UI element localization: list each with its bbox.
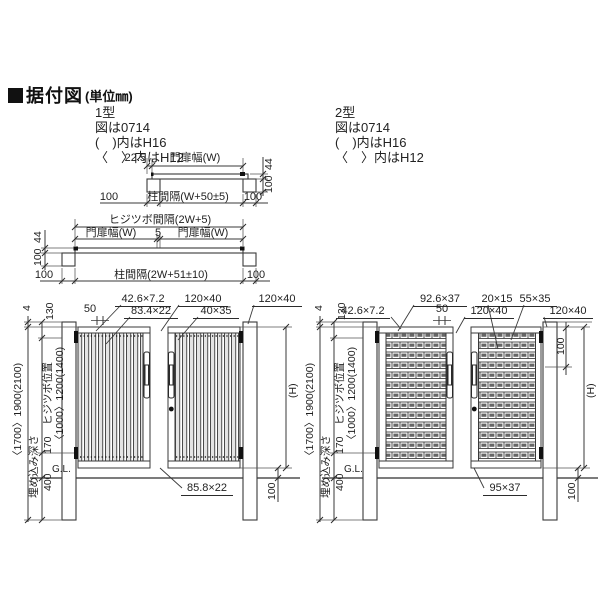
elev2-dim-4: 4 <box>314 302 326 314</box>
page-title-text: 据付図 <box>26 82 83 108</box>
elev2-top-100: 100 <box>556 334 568 358</box>
elev2-clearance-100: 100 <box>567 479 579 503</box>
plan1-dim-100-right: 100 <box>238 191 268 203</box>
plan2-dim-100-right: 100 <box>241 269 271 281</box>
plan2-dim-100v: 100 <box>33 247 45 268</box>
elev1-callout-40x35: 40×35 <box>193 305 239 319</box>
elev2-callout-95x37: 95×37 <box>483 482 527 496</box>
el1-dim-4: 4 <box>22 302 34 314</box>
elev1-dim-170: 170 <box>43 434 55 456</box>
elev1-height-h: (H) <box>288 378 301 404</box>
elev1-hinge-position-values: 〈1000〉1200(1400) <box>55 346 67 446</box>
elev1-callout-120x40-b: 120×40 <box>252 293 302 307</box>
elev1-clearance-100: 100 <box>267 479 279 503</box>
elev2-callout-120x40-a: 120×40 <box>464 305 514 319</box>
section-marker-icon <box>8 88 23 103</box>
elev2-dim-50: 50 <box>432 303 452 315</box>
elev2-ground-line-label: G.L. <box>344 464 363 475</box>
elev1-dim-130: 130 <box>45 301 57 321</box>
plan2-span-label: 柱間隔(2W+51±10) <box>95 269 227 281</box>
plan2-dim-44: 44 <box>33 229 45 246</box>
type2-note-h12: 〈 〉内はH12 <box>335 150 424 165</box>
plan2-dim-100-left: 100 <box>31 269 57 281</box>
plan2-hinge-span-label: ヒジツボ間隔(2W+5) <box>95 214 225 226</box>
plan2-leaf-width-left: 門扉幅(W) <box>80 227 142 239</box>
plan-single-posts <box>147 174 256 192</box>
elev1-dim-50: 50 <box>80 303 100 315</box>
type2-notes: 2型 図は0714 ( )内はH16 〈 〉内はH12 <box>335 105 424 165</box>
plan1-leaf-width-label: 門扉幅(W) <box>162 152 228 164</box>
plan2-leaf-width-right: 門扉幅(W) <box>172 227 234 239</box>
elev2-embed-depth-label: 埋め込み深さ <box>321 432 333 502</box>
plan1-dim-44: 44 <box>264 156 276 173</box>
elev1-total-height: 〈1700〉1900(2100) <box>13 362 26 462</box>
type2-note-h16: ( )内はH16 <box>335 135 424 150</box>
plan1-span-label: 柱間隔(W+50±5) <box>128 191 248 203</box>
type2-name: 2型 <box>335 105 424 120</box>
plan1-dim-100-left: 100 <box>95 191 123 203</box>
elev2-total-height: 〈1700〉1900(2100) <box>305 362 318 462</box>
plan1-offset-label: 22.5 <box>122 152 146 164</box>
elev1-callout-85.8x22: 85.8×22 <box>181 482 233 496</box>
elev2-dim-130: 130 <box>337 301 349 321</box>
type1-note-figure: 図は0714 <box>95 120 184 135</box>
plan2-gap-5: 5 <box>151 227 165 239</box>
elev2-hinge-position-values: 〈1000〉1200(1400) <box>347 346 359 446</box>
type1-note-h16: ( )内はH16 <box>95 135 184 150</box>
elev2-callout-120x40-b: 120×40 <box>543 305 593 319</box>
elev1-callout-83.4x22: 83.4×22 <box>124 305 178 319</box>
type2-note-figure: 図は0714 <box>335 120 424 135</box>
installation-diagram-page: 据付図 (単位㎜) 1型 図は0714 ( )内はH16 〈 〉内はH12 2型… <box>0 0 600 600</box>
elevation1-drawing <box>30 322 300 520</box>
elev1-embed-depth-label: 埋め込み深さ <box>29 432 41 502</box>
elev2-dim-170: 170 <box>335 434 347 456</box>
type1-name: 1型 <box>95 105 184 120</box>
elev2-height-h: (H) <box>586 378 599 404</box>
elev1-ground-line-label: G.L. <box>52 464 71 475</box>
plan-double-posts <box>62 248 256 266</box>
unit-note: (単位㎜) <box>85 86 133 105</box>
